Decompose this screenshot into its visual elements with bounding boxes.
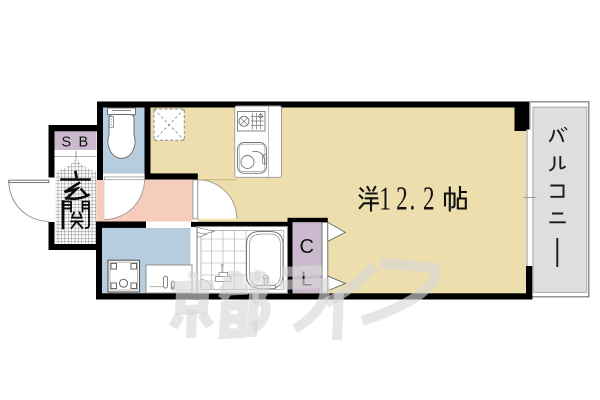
svg-text:C: C (300, 236, 314, 258)
svg-text:2: 2 (423, 180, 435, 217)
svg-text:.: . (410, 180, 416, 217)
svg-text:2: 2 (396, 180, 408, 217)
svg-text:1: 1 (379, 180, 391, 217)
svg-text:S: S (62, 135, 72, 151)
svg-text:B: B (79, 135, 89, 151)
